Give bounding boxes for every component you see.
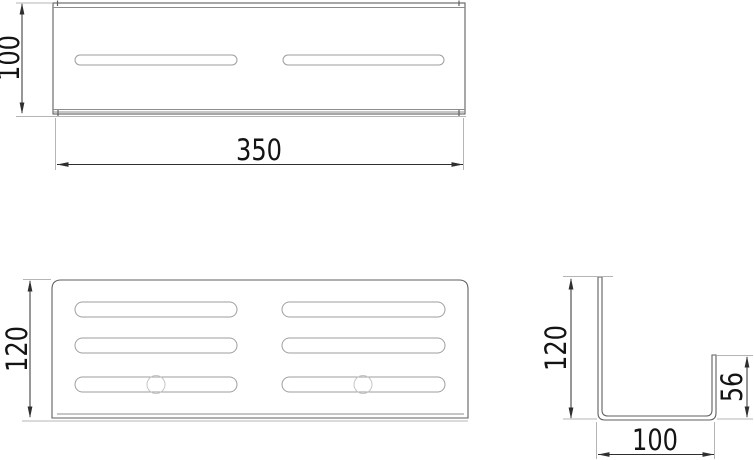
dim-label-120-side: 120 [539, 325, 573, 371]
technical-drawing-sheet: 100 350 120 [0, 0, 754, 460]
dim-label-100-top: 100 [0, 35, 26, 81]
dim-label-56: 56 [715, 372, 749, 402]
front-slot-r2-right [282, 338, 445, 353]
front-slot-r1-left [75, 302, 237, 317]
arrowhead-right [452, 162, 464, 167]
arrowhead-down [28, 407, 33, 419]
dim-label-350: 350 [236, 133, 282, 167]
top-view: 100 350 [0, 1, 466, 171]
dimension-side-lip: 56 [715, 356, 753, 420]
side-view-profile [598, 277, 716, 420]
dimension-front-height: 120 [0, 280, 51, 419]
top-view-slot-right [283, 55, 444, 65]
arrowhead-left [57, 162, 69, 167]
top-view-slot-left [75, 55, 237, 65]
arrowhead-down [569, 408, 574, 420]
dimension-top-width: 350 [56, 118, 464, 170]
dim-label-120-front: 120 [0, 326, 34, 372]
arrowhead-up [28, 280, 33, 292]
dim-label-100-side: 100 [632, 423, 678, 457]
arrowhead-down [745, 407, 750, 419]
arrowhead-up [745, 356, 750, 368]
front-slot-r3-right [282, 377, 445, 392]
side-view: 120 56 100 [539, 277, 753, 460]
front-view: 120 [0, 280, 468, 422]
front-slot-r1-right [282, 302, 445, 317]
arrowhead-down [20, 103, 25, 115]
arrowhead-right [703, 452, 715, 457]
dimension-side-width: 100 [597, 422, 715, 459]
arrowhead-up [569, 278, 574, 290]
arrowhead-left [598, 452, 610, 457]
front-slot-r3-left [75, 377, 237, 392]
front-slot-r2-left [75, 338, 237, 353]
drawing-svg: 100 350 120 [0, 0, 754, 460]
arrowhead-up [20, 3, 25, 15]
